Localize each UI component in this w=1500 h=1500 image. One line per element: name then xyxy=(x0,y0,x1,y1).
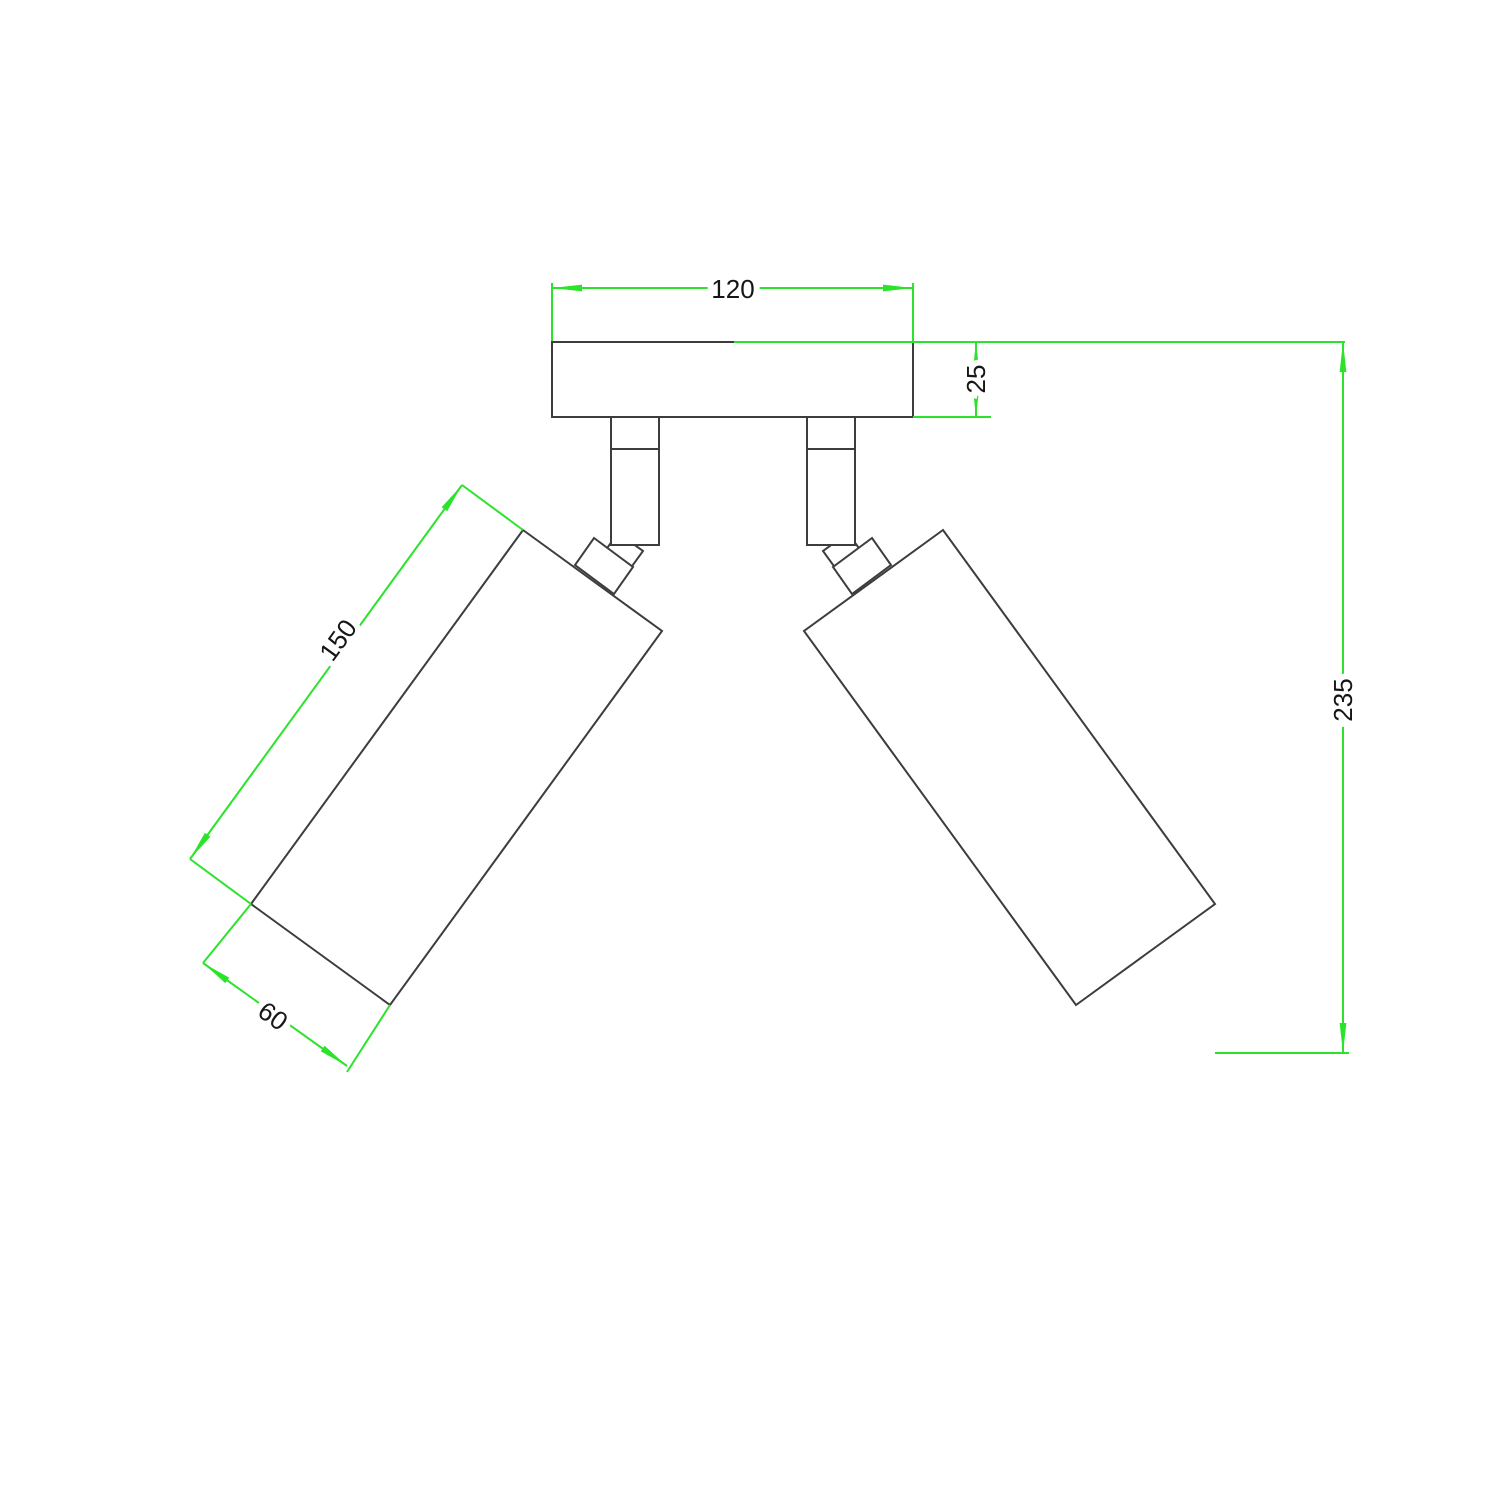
dimension-label-plate-thickness: 25 xyxy=(961,365,991,394)
right-shade-body xyxy=(804,530,1215,1005)
extension-line-150-bottom xyxy=(190,859,251,904)
dimension-label-total-height: 235 xyxy=(1328,678,1358,721)
left-stem xyxy=(611,417,659,545)
dimension-label-shade-diameter: 60 xyxy=(252,995,293,1036)
extension-line-150-top xyxy=(462,485,523,530)
ceiling-mount-plate xyxy=(552,342,913,417)
technical-drawing-canvas: 120 25 235 150 60 xyxy=(0,0,1500,1500)
left-shade-body xyxy=(251,530,662,1005)
spotlight-dimension-drawing: 120 25 235 150 60 xyxy=(0,0,1500,1500)
dimension-label-shade-length: 150 xyxy=(313,614,363,667)
extension-line-60-top xyxy=(203,904,251,963)
right-stem xyxy=(807,417,855,545)
extension-line-60-bottom xyxy=(347,1005,390,1072)
dimension-label-plate-width: 120 xyxy=(711,274,754,304)
